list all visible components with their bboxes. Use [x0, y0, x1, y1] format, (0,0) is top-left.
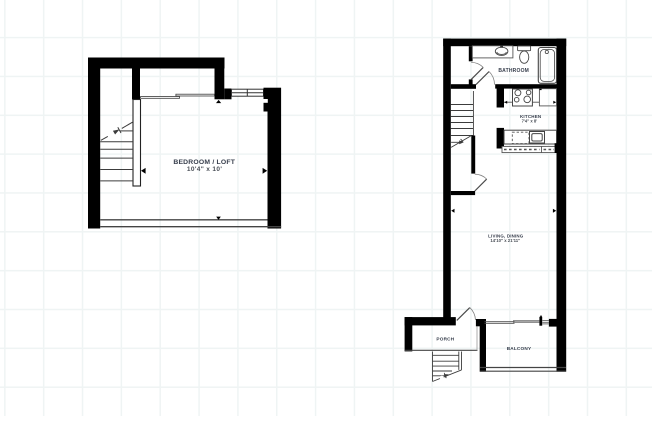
svg-text:7'4" x 8': 7'4" x 8': [522, 118, 538, 123]
svg-text:BATHROOM: BATHROOM: [498, 68, 529, 74]
svg-text:BALCONY: BALCONY: [507, 346, 532, 351]
svg-text:14'10" x 21'11": 14'10" x 21'11": [490, 238, 520, 243]
svg-text:10'4" x 10': 10'4" x 10': [187, 166, 222, 173]
svg-text:PORCH: PORCH: [436, 336, 454, 341]
svg-text:BEDROOM / LOFT: BEDROOM / LOFT: [173, 159, 235, 166]
